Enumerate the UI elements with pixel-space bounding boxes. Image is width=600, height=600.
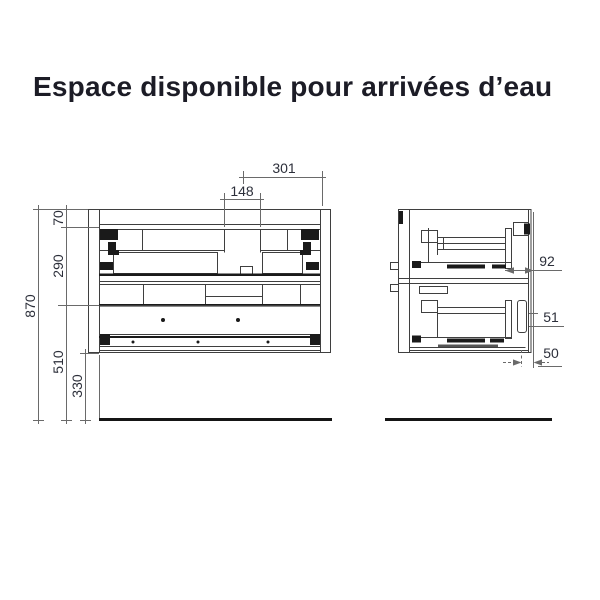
upper-drawer-back-panels xyxy=(114,230,303,274)
dim-301: 301 xyxy=(272,160,296,176)
side-view xyxy=(385,210,552,422)
upper-drawer-side xyxy=(412,228,512,269)
mid-shelf-side xyxy=(410,279,529,294)
front-view xyxy=(89,210,333,422)
dim-330: 330 xyxy=(69,374,85,398)
water-inlet-recess xyxy=(514,223,531,236)
dim-51: 51 xyxy=(543,309,559,325)
technical-drawing: 870 70 290 510 330 301 148 92 51 50 xyxy=(0,0,600,600)
dim-50: 50 xyxy=(543,345,559,361)
lower-drawer-side xyxy=(412,300,527,343)
lower-drawer-front xyxy=(99,304,321,335)
dim-510: 510 xyxy=(50,350,66,374)
dim-870: 870 xyxy=(22,294,38,318)
dim-148: 148 xyxy=(230,183,254,199)
technical-sheet: Espace disponible pour arrivées d’eau xyxy=(0,0,600,600)
cabinet-side-outline xyxy=(391,210,532,353)
dim-92: 92 xyxy=(539,253,555,269)
dim-290: 290 xyxy=(50,254,66,278)
floor-line-side xyxy=(385,418,552,421)
bottom-rail xyxy=(99,334,320,345)
dim-70: 70 xyxy=(50,210,66,226)
floor-line-front xyxy=(99,418,332,421)
slide-bracket-left xyxy=(100,229,119,270)
drawer-slide-rails xyxy=(99,274,321,305)
